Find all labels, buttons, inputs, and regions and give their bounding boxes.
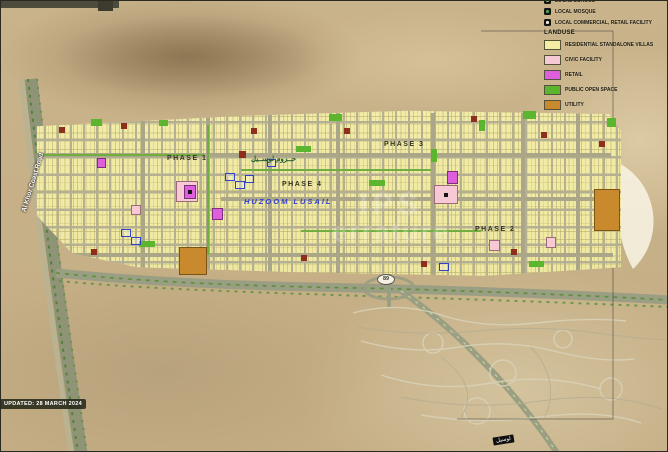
route-shield: 89 (377, 274, 395, 285)
open-space (479, 120, 485, 131)
civic-block (489, 240, 500, 251)
retail-block (447, 171, 458, 184)
open-space (91, 119, 102, 126)
highlighted-plot (235, 181, 245, 189)
green-median (241, 169, 431, 171)
open-space (523, 111, 536, 119)
commercial-icon (544, 19, 551, 26)
poi-label: LOCAL SCHOOL (555, 0, 595, 4)
retail-block (212, 208, 223, 220)
open-space (296, 146, 311, 152)
small-facility (251, 128, 257, 134)
phase-2-label: PHASE 2 (475, 226, 515, 233)
legend-poi-row: LOCAL COMMERCIAL, RETAIL FACILITY (544, 19, 668, 26)
legend-item: PUBLIC OPEN SPACE (544, 85, 668, 95)
open-space (139, 241, 155, 247)
small-facility (344, 128, 350, 134)
satellite-masterplan-map: PHASE 1 PHASE 2 PHASE 3 PHASE 4 HUZOOM L… (0, 0, 668, 452)
legend-poi-row: LOCAL SCHOOL (544, 0, 668, 4)
retail-swatch (544, 70, 561, 80)
small-facility (599, 141, 605, 147)
poi-label: LOCAL COMMERCIAL, RETAIL FACILITY (555, 20, 652, 26)
civic-block (546, 237, 556, 248)
small-facility (541, 132, 547, 138)
poi-label: LOCAL MOSQUE (555, 9, 596, 15)
small-facility (239, 151, 246, 158)
open-space-swatch (544, 85, 561, 95)
highlighted-plot (245, 175, 254, 183)
small-facility (301, 255, 307, 261)
legend-item: RETAIL (544, 70, 668, 80)
internal-road (336, 113, 340, 275)
highlighted-plot (439, 263, 449, 271)
open-space (431, 149, 437, 162)
mosque-icon (544, 8, 551, 15)
utility-block (179, 247, 207, 275)
small-facility (59, 127, 65, 133)
highlighted-plot (131, 237, 141, 245)
civic-swatch (544, 55, 561, 65)
legend-poi-row: LOCAL MOSQUE (544, 8, 668, 15)
open-space (329, 114, 342, 121)
internal-road (576, 113, 580, 275)
landuse-title: LANDUSE (544, 30, 668, 36)
legend-item: UTILITY (544, 100, 668, 110)
phase-3-label: PHASE 3 (384, 141, 424, 148)
retail-block (97, 158, 106, 168)
open-space (529, 261, 544, 267)
small-facility (91, 249, 97, 255)
phase-4-label: PHASE 4 (282, 181, 322, 188)
updated-date-tag: UPDATED: 28 MARCH 2024 (1, 399, 86, 409)
internal-road (268, 113, 272, 275)
project-name-label: HUZOOM LUSAIL (244, 197, 333, 206)
civic-block (434, 185, 458, 204)
small-facility (511, 249, 517, 255)
civic-block (131, 205, 141, 215)
internal-road (141, 113, 145, 275)
internal-road (521, 113, 525, 275)
open-space (607, 118, 616, 127)
utility-block (594, 189, 620, 231)
school-icon (544, 0, 551, 4)
small-facility (471, 116, 477, 122)
project-name-arabic-label: حــزوم لوســيل (251, 155, 296, 163)
green-median (301, 230, 481, 232)
highlighted-plot (121, 229, 131, 237)
highlighted-plot (225, 173, 235, 181)
open-space (159, 120, 168, 126)
legend-item: CIVIC FACILITY (544, 55, 668, 65)
legend: LOCAL SCHOOL LOCAL MOSQUE LOCAL COMMERCI… (544, 0, 668, 115)
legend-item: RESIDENTIAL STANDALONE VILLAS (544, 40, 668, 50)
masterplan-area (31, 109, 621, 281)
open-space (369, 180, 385, 186)
green-median (207, 125, 209, 255)
small-facility (421, 261, 427, 267)
phase-1-label: PHASE 1 (167, 155, 207, 162)
small-facility (121, 123, 127, 129)
retail-block (184, 185, 196, 199)
residential-swatch (544, 40, 561, 50)
utility-swatch (544, 100, 561, 110)
internal-road (56, 253, 613, 257)
